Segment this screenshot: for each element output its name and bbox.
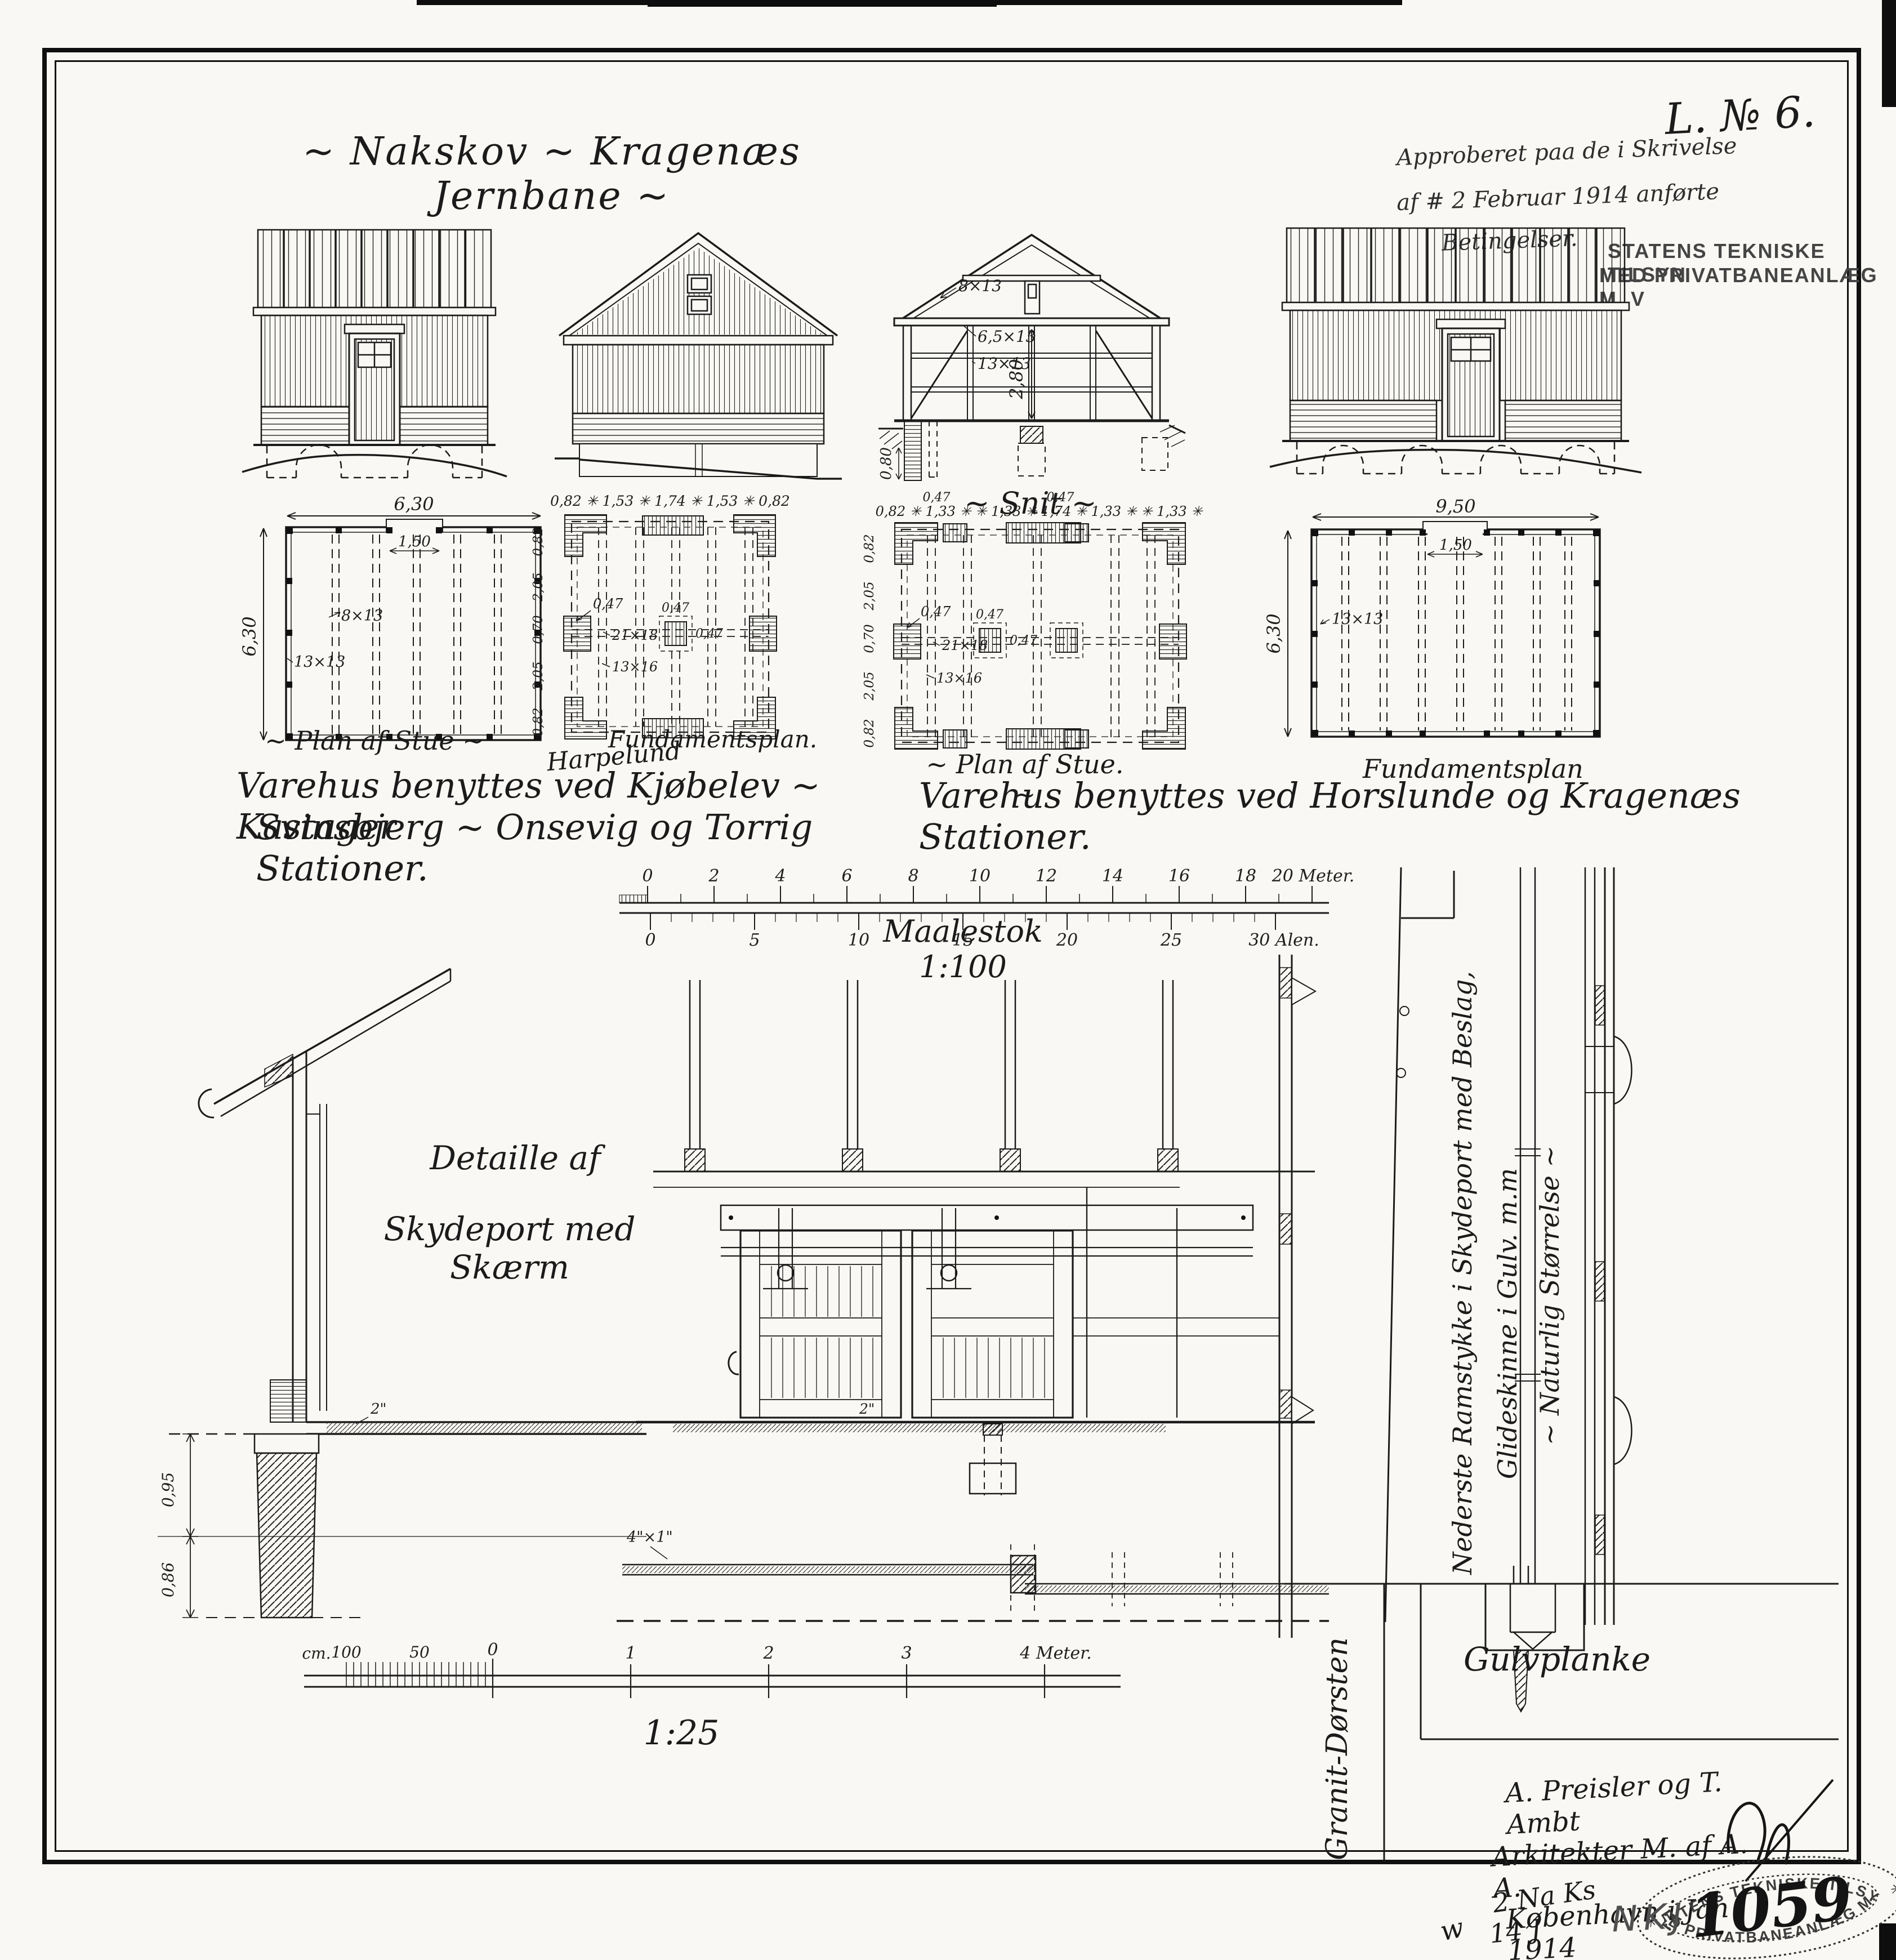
scale100-meter-2: 2 [708,866,719,886]
plan2-dim-left-4: 0,82 [531,707,546,736]
elevation-front-large [1270,221,1641,482]
detail-dim-plank: 2" [370,1401,387,1418]
drawing-sheet: ~ Nakskov ~ Kragenæs Jernbane ~ L. № 6. … [0,0,1896,1960]
plan1-dim-height: 6,30 [239,616,260,656]
wall-posts [286,527,541,740]
plan1-dim-door: 1,50 [398,533,431,550]
stamp-number: 1059 [1686,1863,1856,1952]
foundation-dashed [1297,442,1614,474]
detail-dim-lower: 0,86 [159,1562,177,1597]
margin-note-initials: NKJ [1611,1895,1689,1940]
scale25-50: 50 [409,1643,430,1661]
plan-fundament-large: 9,50 6,30 1,50 13×13 [1270,501,1636,763]
scale25-caption: 1:25 [614,1713,749,1753]
section-dim-height: 2,80 [1006,359,1027,399]
plan2-label-joist: 13×16 [612,659,658,675]
plan2-label-beam: 21×18 [612,627,658,643]
section-label-beam: 6,5×13 [978,327,1036,346]
scale25-1: 1 [625,1643,636,1663]
scale25-4: 4 Meter. [1019,1643,1092,1663]
margin-note-ref: 14 J [1488,1913,1542,1949]
scale25-0: 0 [487,1640,498,1660]
scan-artifact-right-top [1882,0,1896,107]
detail-caption-line1: Detaille af [414,1139,617,1177]
scale100-meter-12: 12 [1036,866,1057,886]
usage-note-right: Varehus benyttes ved Horslunde og Kragen… [919,775,1764,857]
plan4-label-post: 13×13 [1332,611,1383,628]
detail-dim-upper: 0,95 [159,1472,177,1507]
detail-dim-rail: 4"×1" [626,1529,673,1546]
scale100-meter-6: 6 [841,866,852,886]
plan1-dim-width: 6,30 [394,493,434,515]
scale100-meter-0: 0 [642,866,653,886]
scale100-meter-10: 10 [969,866,991,886]
elevation-gable [555,224,842,489]
plan3-dim-left-2: 0,70 [862,624,877,653]
plan3-label-joist: 13×16 [936,670,982,686]
stamp-star-right: ✳ [1888,1879,1896,1899]
plan2-dim-left-2: 0,70 [531,615,546,644]
joist-lines [1342,537,1572,730]
plan4-dim-height: 6,30 [1263,613,1284,653]
plan2-dims-top: 0,82 ✳ 1,53 ✳ 1,74 ✳ 1,53 ✳ 0,82 [550,493,790,509]
scale-bar-1-25: cm. 100 50 0 1 2 3 4 Meter. [293,1642,1137,1721]
plan3-label-beam: 21×18 [942,638,988,653]
wall-posts [1311,529,1600,737]
scale25-100: 100 [331,1643,361,1661]
sheet-title: ~ Nakskov ~ Kragenæs Jernbane ~ [242,130,862,219]
plan3-label-pad: 0,47 [921,604,951,620]
plan3-dim-small-right: 0,47 [1047,491,1074,505]
plan3-label-pad-center: 0,47 [976,608,1003,622]
scale25-unit: cm. [302,1644,331,1663]
scale100-meter-14: 14 [1102,866,1123,886]
plan3-label-pad-center2: 0,47 [1010,634,1037,648]
detail-fullsize-rail [1368,867,1684,1625]
scale100-meter-4: 4 [774,866,786,886]
scale25-2: 2 [762,1643,774,1663]
granite-threshold-label: Granit-Dørsten [1320,1591,1360,1906]
plan3-dim-left-3: 2,05 [862,671,877,701]
plan4-dim-door: 1,50 [1439,537,1472,554]
plan3-dim-left-0: 0,82 [862,534,877,563]
plan3-dims-top: 0,82 ✳ 1,33 ✳ ✳ 1,33 ✳ 1,74 ✳ 1,33 ✳ ✳ 1… [876,504,1204,519]
section-snit: 8×13 6,5×13 13×13 2,80 0,80 [878,222,1185,490]
plan-stue-large: 0,47 0,47 0,82 ✳ 1,33 ✳ ✳ 1,33 ✳ 1,74 ✳ … [864,490,1219,774]
plan2-dim-left-1: 2,05 [531,572,546,602]
plan1-caption: ~ Plan af Stue ~ [256,725,493,756]
plan1-label-joist: 8×13 [341,607,383,625]
detail-caption-line2: Skydeport med Skærm [346,1210,673,1286]
fullsize-caption-line1: Nederste Ramstykke i Skydeport med Besla… [1447,963,1481,1583]
elevation-front-small [242,224,507,479]
plan4-dim-width: 9,50 [1435,496,1475,517]
scale100-meter-8: 8 [908,866,918,886]
top-stamp-line2: MED PRIVATBANEANLÆG M. V [1599,264,1896,311]
scale100-meter-16: 16 [1168,866,1190,886]
scale25-3: 3 [901,1643,912,1663]
fullsize-caption-line2: Glideskinne i Gulv. m.m [1492,1126,1526,1521]
plan1-label-post: 13×13 [294,653,345,671]
detail-rail-plan: 4"×1" [617,1521,1332,1633]
plan2-dim-left-3: 2,05 [531,661,546,691]
scale100-meter-18: 18 [1235,866,1256,886]
plan2-label-pad: 0,47 [593,596,623,612]
plan2-dim-left-0: 0,82 [531,527,546,556]
plan-stue-small: 6,30 6,30 1,50 8×13 13×13 [248,501,563,755]
fullsize-caption-line3: ~ Naturlig Størrelse ~ [1534,1126,1568,1464]
detail-dim-plank2: 2" [859,1401,875,1417]
plan3-dim-left-4: 0,82 [862,719,877,747]
scale100-meter-end: 20 Meter. [1272,866,1355,886]
foundation-dashed [267,445,482,478]
plan3-dim-small-left: 0,47 [923,491,951,505]
plan2-label-pad-center2: 0,47 [695,627,723,641]
margin-note-mark: w [1438,1912,1467,1947]
scan-artifact-top-streak-2 [648,4,997,7]
floor-plank-label: Gulvplanke [1439,1640,1675,1678]
section-label-rafter: 8×13 [958,277,1002,295]
joist-lines [332,534,501,734]
plan2-label-pad-center: 0,47 [662,601,689,615]
section-dim-depth: 0,80 [878,447,895,480]
plan3-dim-left-1: 2,05 [862,581,877,611]
